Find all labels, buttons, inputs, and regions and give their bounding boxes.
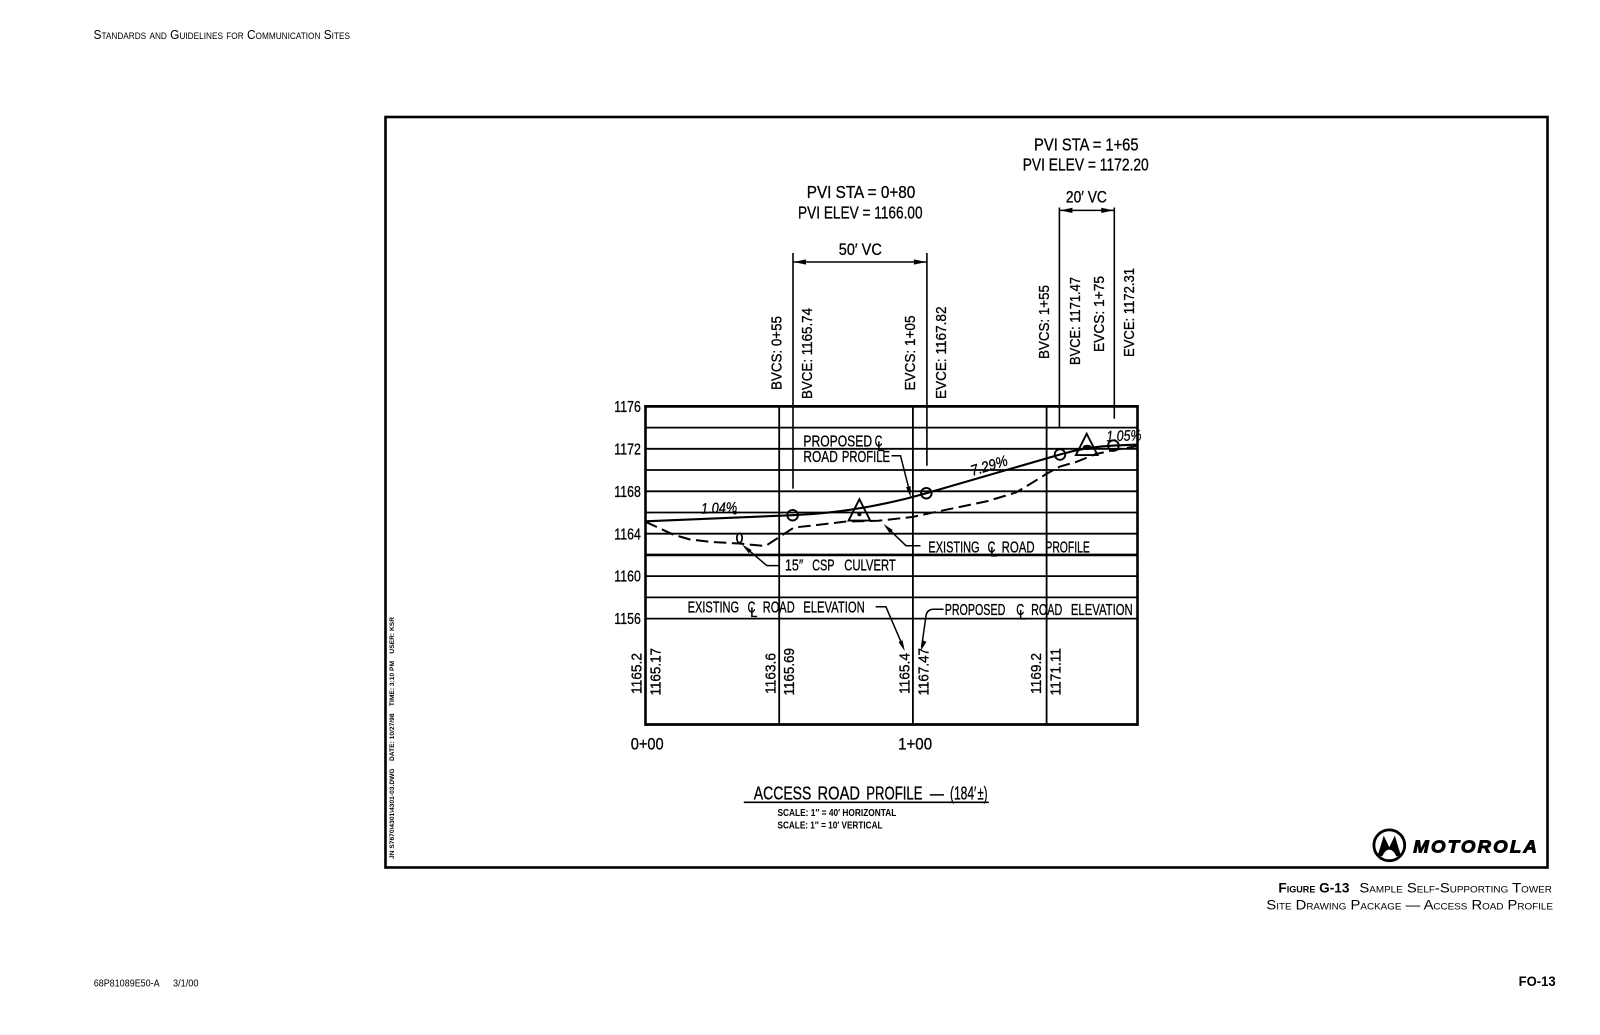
svg-text:1+00: 1+00 — [898, 735, 932, 754]
svg-text:Figure G-13: Figure G-13 — [1278, 881, 1349, 896]
svg-text:EXISTING: EXISTING — [928, 539, 979, 556]
svg-text:JN S7670\4301\4301-03.DWG D: JN S7670\4301\4301-03.DWG DATE: 10/27/98… — [390, 616, 396, 859]
svg-text:BVCS: 1+55: BVCS: 1+55 — [1036, 285, 1053, 359]
svg-text:Site Drawing Package — Access: Site Drawing Package — Access Road Profi… — [1266, 897, 1553, 912]
svg-text:15″: 15″ — [785, 558, 804, 575]
svg-text:PROFILE: PROFILE — [866, 783, 922, 804]
svg-text:PVI ELEV = 1172.20: PVI ELEV = 1172.20 — [1023, 155, 1149, 175]
svg-text:ROAD: ROAD — [818, 783, 861, 804]
svg-text:–: – — [930, 783, 945, 804]
svg-text:EVCS: 1+05: EVCS: 1+05 — [902, 316, 919, 391]
svg-text:ROAD: ROAD — [803, 449, 837, 466]
svg-text:ROAD: ROAD — [763, 600, 795, 617]
svg-text:1176: 1176 — [614, 399, 641, 416]
svg-text:ROAD: ROAD — [1002, 539, 1035, 556]
svg-text:PVI STA = 0+80: PVI STA = 0+80 — [807, 182, 916, 202]
svg-text:1164: 1164 — [614, 526, 641, 543]
svg-text:CULVERT: CULVERT — [844, 558, 896, 575]
svg-text:SCALE: 1″ = 10′ VERTICAL: SCALE: 1″ = 10′ VERTICAL — [778, 820, 883, 831]
svg-text:L: L — [750, 605, 758, 620]
svg-text:CSP: CSP — [812, 558, 835, 575]
svg-text:0+00: 0+00 — [631, 735, 664, 754]
svg-text:PROFILE: PROFILE — [1045, 539, 1089, 556]
svg-text:1171.11: 1171.11 — [1047, 648, 1064, 696]
svg-text:EVCE: 1167.82: EVCE: 1167.82 — [933, 307, 950, 400]
svg-text:FO-13: FO-13 — [1519, 973, 1556, 989]
svg-text:EXISTING: EXISTING — [688, 600, 740, 617]
svg-text:PVI STA = 1+65: PVI STA = 1+65 — [1034, 134, 1139, 154]
svg-text:MOTOROLA: MOTOROLA — [1413, 837, 1539, 857]
svg-text:20′ VC: 20′ VC — [1066, 188, 1107, 207]
svg-text:ROAD: ROAD — [1031, 602, 1062, 619]
svg-text:PROFILE: PROFILE — [842, 449, 890, 466]
svg-text:±): ±) — [978, 783, 988, 804]
svg-text:1172: 1172 — [614, 441, 641, 458]
svg-text:1160: 1160 — [614, 569, 641, 586]
svg-text:Standards and Guidelines for C: Standards and Guidelines for Communicati… — [94, 27, 351, 42]
svg-text:1165.17: 1165.17 — [648, 648, 665, 696]
svg-text:1167.47: 1167.47 — [915, 648, 932, 696]
svg-text:PROPOSED: PROPOSED — [945, 602, 1006, 619]
svg-text:SCALE: 1″ = 40′ HORIZONTAL: SCALE: 1″ = 40′ HORIZONTAL — [778, 808, 897, 819]
svg-text:(184′: (184′ — [950, 783, 977, 804]
svg-text:1.05%: 1.05% — [1106, 427, 1142, 445]
svg-text:1156: 1156 — [614, 611, 641, 628]
svg-text:ELEVATION: ELEVATION — [1071, 602, 1133, 619]
svg-text:50′ VC: 50′ VC — [839, 240, 882, 259]
svg-text:L: L — [1019, 607, 1027, 622]
svg-text:1165.69: 1165.69 — [781, 648, 798, 696]
svg-text:68P81089E50-A: 68P81089E50-A — [94, 979, 160, 990]
svg-text:BVCS: 0+55: BVCS: 0+55 — [768, 316, 785, 390]
svg-text:1168: 1168 — [614, 484, 641, 501]
svg-text:PVI ELEV = 1166.00: PVI ELEV = 1166.00 — [798, 203, 923, 223]
svg-text:1165.2: 1165.2 — [628, 653, 645, 694]
svg-text:3/1/00: 3/1/00 — [173, 979, 199, 990]
svg-text:1.04%: 1.04% — [701, 499, 738, 517]
svg-text:EVCS: 1+75: EVCS: 1+75 — [1091, 276, 1108, 352]
svg-text:1169.2: 1169.2 — [1028, 653, 1045, 694]
svg-text:1165.4: 1165.4 — [897, 653, 914, 694]
svg-text:ACCESS: ACCESS — [754, 783, 812, 804]
svg-text:Sample Self-Supporting Tower: Sample Self-Supporting Tower — [1359, 881, 1552, 896]
svg-text:ELEVATION: ELEVATION — [803, 600, 865, 617]
svg-text:EVCE: 1172.31: EVCE: 1172.31 — [1121, 268, 1138, 357]
svg-text:BVCE: 1171.47: BVCE: 1171.47 — [1067, 277, 1084, 365]
svg-text:L: L — [990, 545, 998, 560]
svg-text:1163.6: 1163.6 — [762, 653, 779, 694]
svg-text:BVCE: 1165.74: BVCE: 1165.74 — [799, 308, 816, 399]
